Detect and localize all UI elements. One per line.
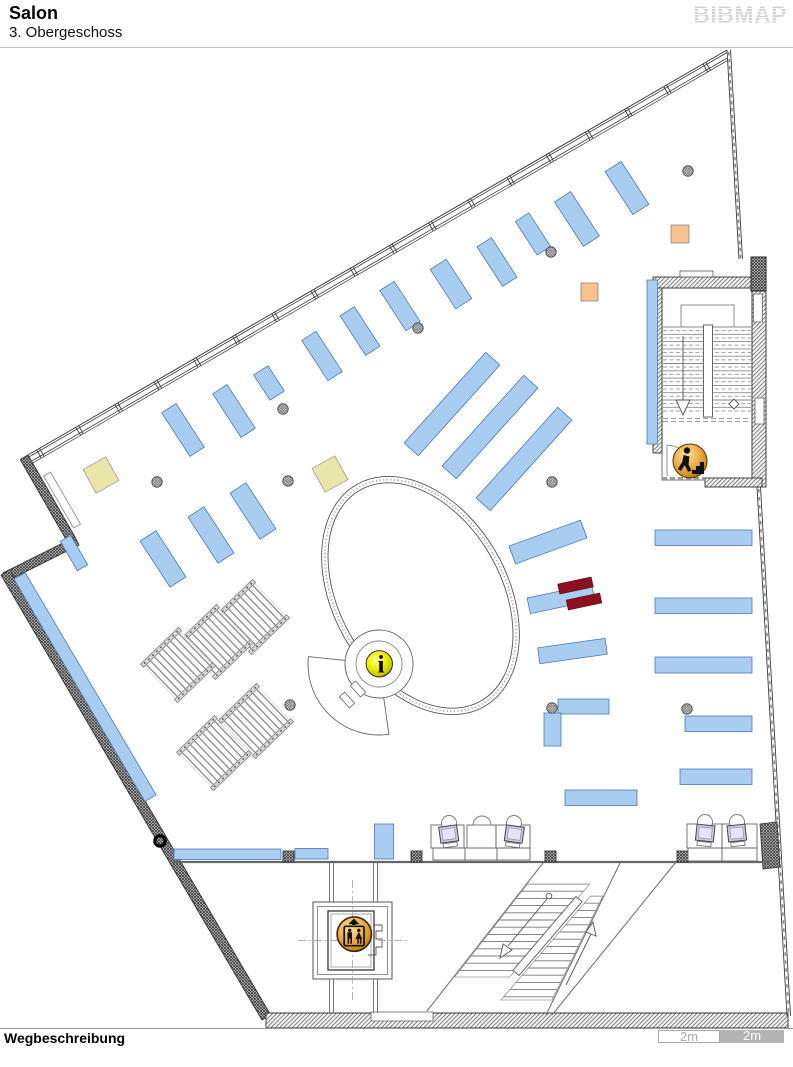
svg-text:i: i <box>378 652 385 679</box>
